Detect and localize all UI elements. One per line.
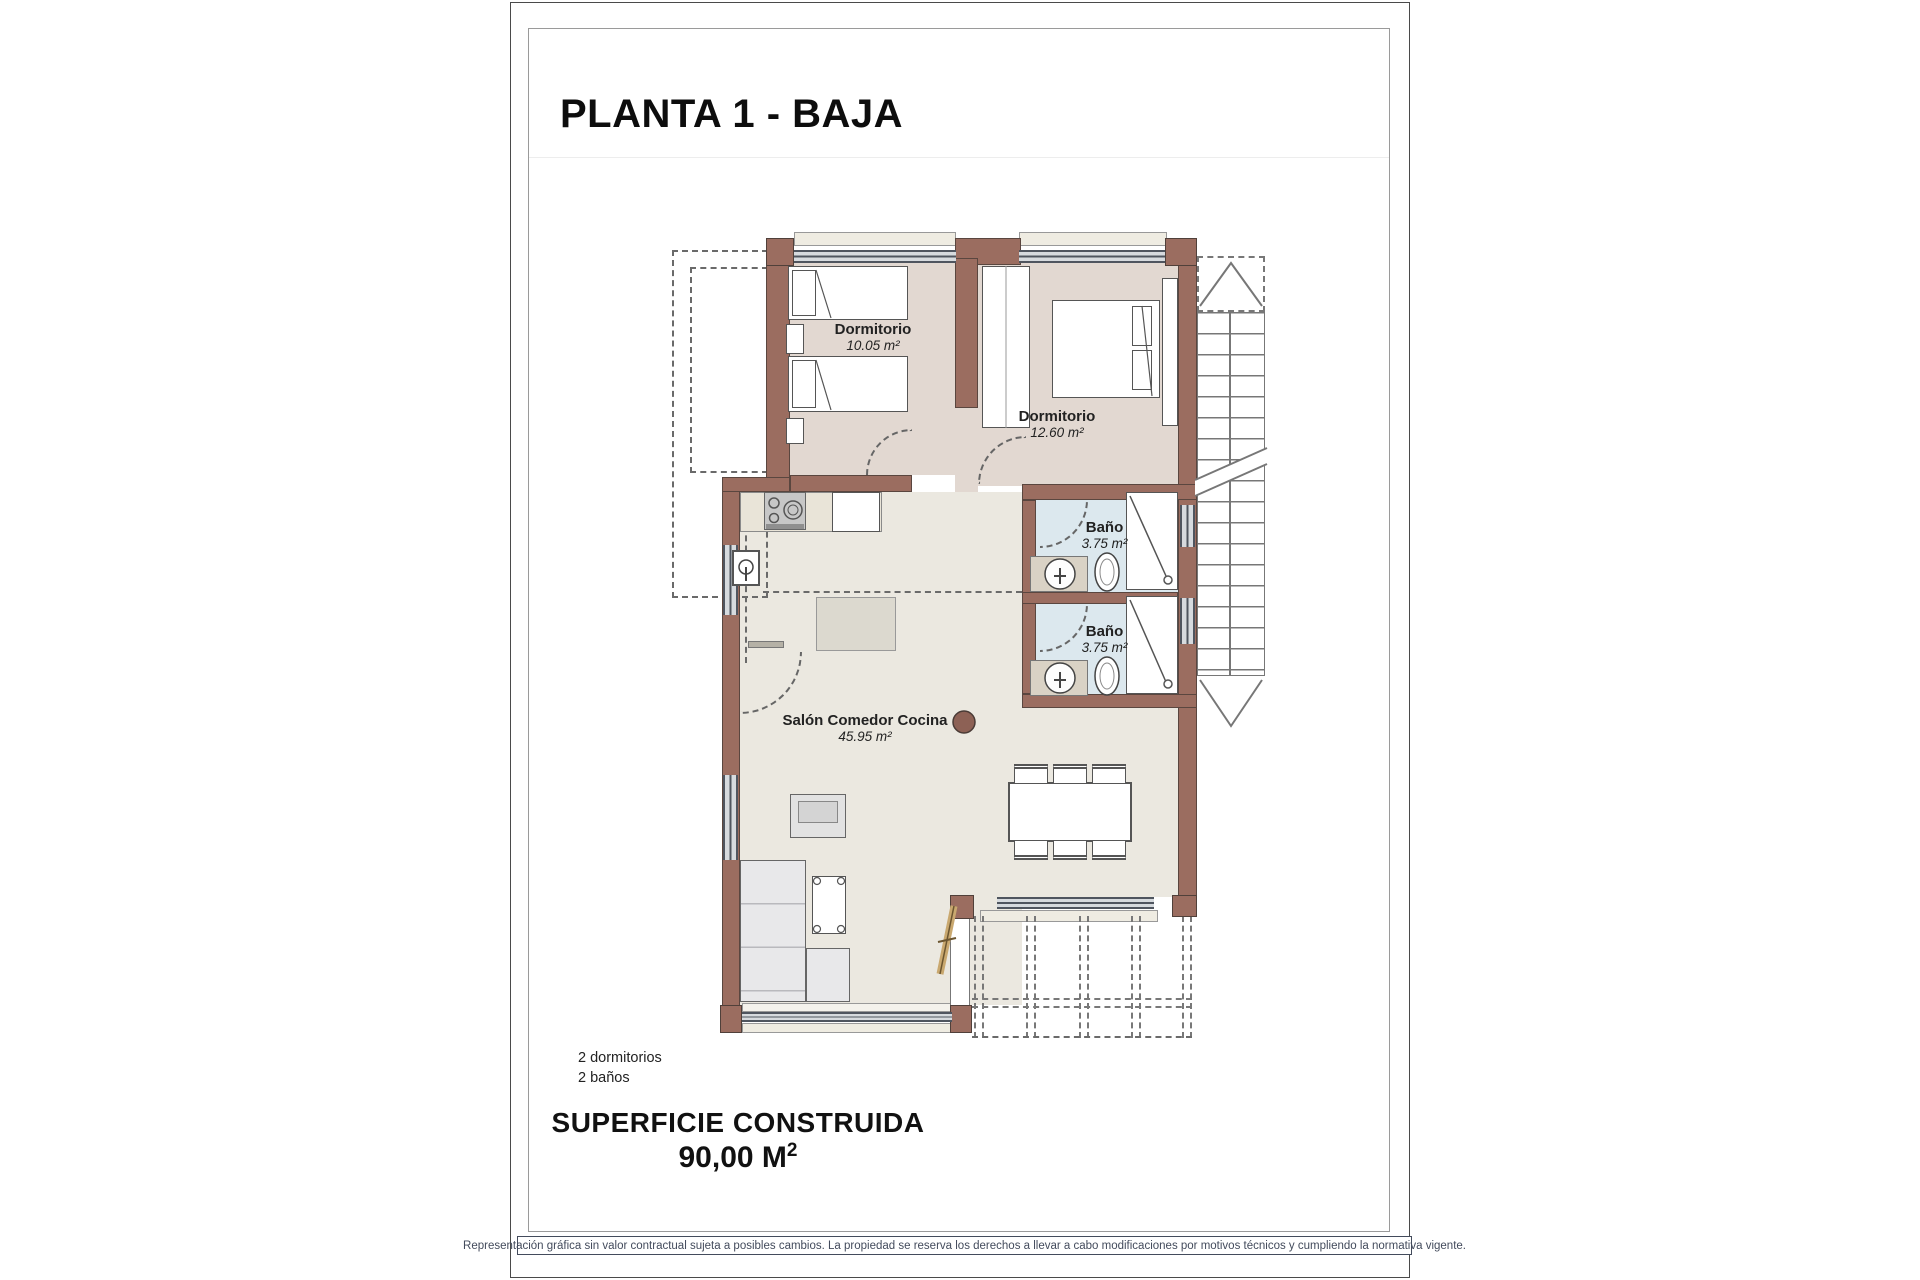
nightstand-2 (786, 418, 804, 444)
wall-pillar-dining-left (950, 895, 974, 919)
window-living (723, 775, 738, 860)
built-surface-value: 90,00 M2 (488, 1140, 988, 1176)
kitchen-island (816, 597, 896, 651)
room-label-salon: Salón Comedor Cocina 45.95 m² (760, 712, 970, 744)
stairs-center-line (1229, 312, 1231, 676)
wall-between-bedrooms (955, 258, 978, 408)
wall-pillar-bottom-right (1172, 895, 1197, 917)
pergola-cross-line (972, 998, 1192, 1008)
wall-bath-bottom (1022, 694, 1197, 708)
sofa-chaise (806, 948, 850, 1002)
wall-pillar-top-left (766, 238, 794, 266)
dining-table (1008, 782, 1132, 842)
pergola-beam (1079, 916, 1089, 1038)
window-bath-2 (1180, 598, 1195, 644)
dining-chair (1014, 840, 1048, 860)
built-surface-label: SUPERFICIE CONSTRUIDA (488, 1106, 988, 1140)
disclaimer-text: Representación gráfica sin valor contrac… (463, 1240, 1466, 1252)
pergola-edge-line (972, 1036, 1192, 1038)
carport-dashed-outline-inner (690, 267, 768, 473)
stairs-landing-dashed (1197, 256, 1265, 312)
room-label-dormitorio-1: Dormitorio 10.05 m² (798, 321, 948, 353)
tv-unit-drawer (798, 801, 838, 823)
half-wall-stub (748, 641, 784, 648)
bed-double-pillow-1 (1132, 306, 1152, 346)
window-bedroom-1 (794, 250, 956, 263)
wall-bedroom1-bottom (790, 475, 912, 492)
pergola-beam (1026, 916, 1036, 1038)
kitchen-sink-fixture (732, 550, 760, 586)
dining-chair (1053, 840, 1087, 860)
pergola-beam (1131, 916, 1141, 1038)
entry-door-opening (950, 915, 970, 1007)
wall-pillar-living-bottom-left (720, 1005, 742, 1033)
wall-salon-step (722, 477, 790, 492)
floor-hall (955, 406, 978, 494)
dining-chair (1092, 764, 1126, 784)
sliding-door-living (742, 1012, 952, 1022)
sliding-door-outer-sill (742, 1023, 952, 1033)
bed-single-2-pillow (792, 360, 816, 408)
window-bedroom-2 (1019, 250, 1167, 263)
dining-chair (1053, 764, 1087, 784)
disclaimer-bar: Representación gráfica sin valor contrac… (517, 1236, 1412, 1255)
window-sill-bedroom-2 (1019, 232, 1167, 246)
bathrooms-count: 2 baños (578, 1068, 662, 1088)
kitchen-stove (764, 492, 806, 530)
stairs-treads (1197, 312, 1265, 676)
wardrobe-bedroom-2 (982, 266, 1030, 428)
overhang-dashed-horizontal (763, 591, 1022, 593)
room-label-dormitorio-2: Dormitorio 12.60 m² (982, 408, 1132, 440)
bedrooms-count: 2 dormitorios (578, 1048, 662, 1068)
superscript: 2 (787, 1140, 798, 1161)
pergola-beam (1182, 916, 1192, 1038)
bed-double-pillow-2 (1132, 350, 1152, 390)
coffee-table (812, 876, 846, 934)
shelf-bedroom-2 (1162, 278, 1178, 426)
wall-right (1178, 238, 1197, 915)
vanity-bath-1 (1030, 556, 1088, 592)
wall-pillar-top-right (1165, 238, 1197, 266)
window-sill-bedroom-1 (794, 232, 956, 246)
room-label-bano-1: Baño 3.75 m² (1052, 519, 1157, 551)
wall-pillar-entry-bottom (950, 1005, 972, 1033)
sliding-door-inner-sill (742, 1003, 952, 1012)
kitchen-fridge (832, 492, 880, 532)
room-label-bano-2: Baño 3.75 m² (1052, 623, 1157, 655)
program-summary: 2 dormitorios 2 baños (578, 1048, 662, 1088)
bed-single-1-pillow (792, 270, 816, 316)
pergola-beam (974, 916, 984, 1038)
door-opening-bedroom-1 (912, 475, 955, 492)
tv-unit (790, 794, 846, 838)
vanity-bath-2 (1030, 660, 1088, 696)
page-title: PLANTA 1 - BAJA (560, 92, 903, 137)
header-divider-line (529, 157, 1389, 158)
window-dining (997, 897, 1154, 909)
dining-chair (1092, 840, 1126, 860)
dining-chair (1014, 764, 1048, 784)
window-bath-1 (1180, 505, 1195, 547)
built-surface: SUPERFICIE CONSTRUIDA 90,00 M2 (488, 1106, 988, 1176)
sofa (740, 860, 806, 1002)
